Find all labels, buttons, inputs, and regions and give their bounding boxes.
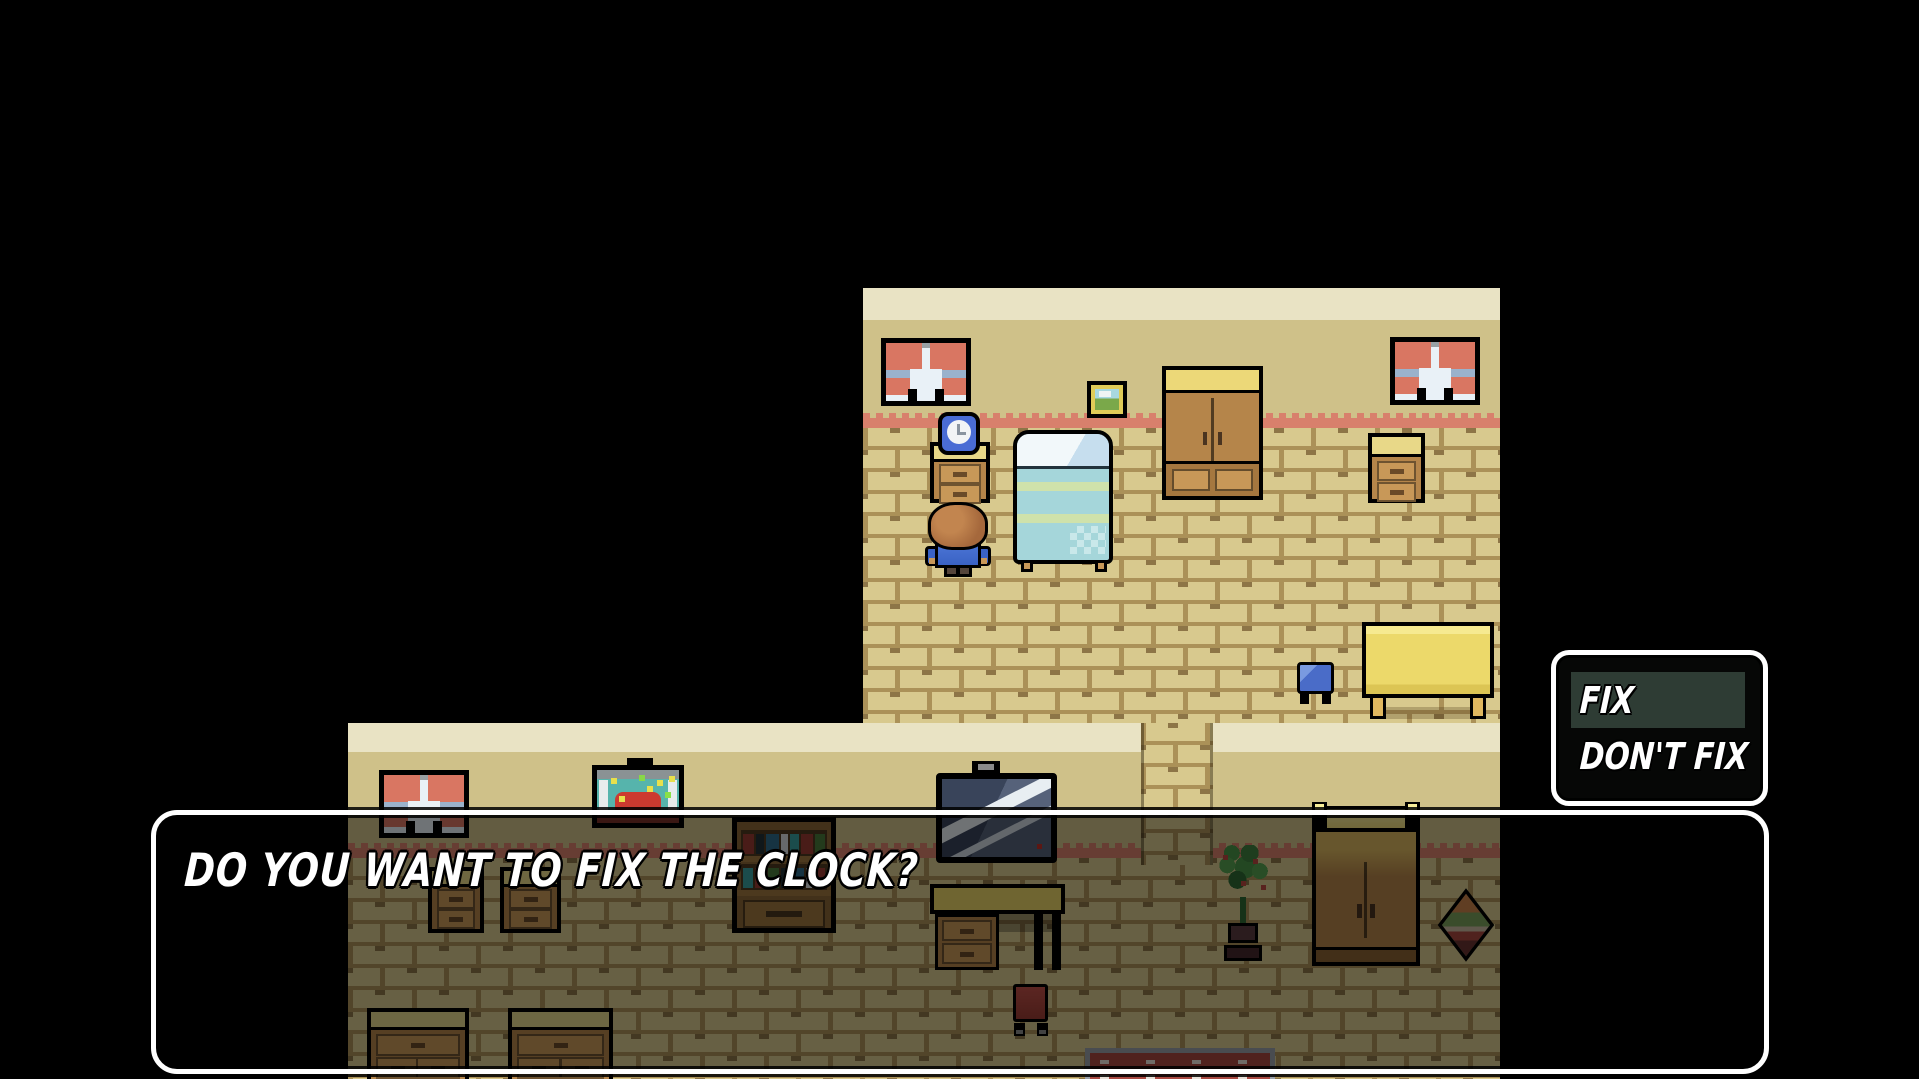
nightstand-drawer	[1377, 482, 1416, 502]
curtain-tie	[942, 370, 966, 378]
picture-frame	[1087, 381, 1127, 418]
blue-stool	[1297, 662, 1334, 704]
painting-hook	[627, 758, 653, 770]
wardrobe-handle	[1203, 432, 1207, 445]
bedroom-wall-trim	[863, 288, 1500, 320]
blanket-stripe	[1017, 482, 1109, 491]
wardrobe-handle	[1218, 432, 1222, 445]
curtain-fold	[930, 343, 942, 369]
side-table	[1362, 622, 1494, 719]
curtain-right	[942, 343, 966, 395]
painting-confetti	[611, 778, 617, 784]
nightstand-drawer	[939, 484, 981, 504]
window	[881, 338, 971, 406]
wardrobe-drawer	[1172, 469, 1210, 491]
curtain-right	[1451, 342, 1475, 394]
curtain-end	[908, 389, 917, 401]
painting-curtain	[668, 780, 677, 812]
tv-mount	[972, 761, 1000, 773]
wardrobe-base	[1166, 461, 1259, 496]
table-shadow	[1376, 707, 1480, 719]
painting-curtain	[599, 780, 608, 812]
wardrobe-door-split	[1211, 398, 1214, 462]
table-top	[1362, 622, 1494, 698]
wardrobe-top	[1166, 370, 1259, 393]
choice-menu: FIX DON'T FIX	[1551, 650, 1768, 806]
dialog-box[interactable]: DO YOU WANT TO FIX THE CLOCK?	[151, 810, 1769, 1074]
bed	[1013, 430, 1113, 564]
curtain-fold	[910, 343, 922, 369]
clock-hand	[957, 432, 966, 435]
stool-seat	[1297, 662, 1334, 694]
curtain-end	[1417, 388, 1426, 400]
choice-option-label: FIX	[1579, 679, 1635, 722]
curtain-fold	[1419, 342, 1431, 368]
nightstand-drawer	[1377, 461, 1416, 481]
blanket-stripe	[1017, 514, 1109, 523]
painting-top-bar	[597, 770, 679, 779]
player-character[interactable]	[925, 502, 991, 580]
bed-foot	[1095, 560, 1107, 572]
picture-cloud	[1099, 391, 1111, 397]
blanket-checker	[1070, 526, 1106, 554]
nightstand-drawer	[939, 464, 981, 484]
bed-pillow	[1017, 434, 1109, 469]
curtain-left	[886, 343, 910, 395]
curtain-left	[1395, 342, 1419, 394]
curtain-tie	[886, 370, 910, 378]
bed-foot	[1021, 560, 1033, 572]
choice-option-label: DON'T FIX	[1579, 735, 1750, 778]
wardrobe-drawer	[1215, 469, 1253, 491]
alarm-clock[interactable]	[938, 412, 980, 455]
nightstand	[1368, 433, 1425, 503]
curtain-tie	[384, 802, 408, 810]
window	[1390, 337, 1480, 405]
curtain-fold	[428, 775, 440, 801]
painting-crab	[615, 792, 661, 812]
curtain-tie	[440, 802, 464, 810]
curtain-end	[935, 389, 944, 401]
living-room-wall-trim	[348, 723, 1500, 752]
character-hair	[928, 502, 988, 550]
curtain-end	[1444, 388, 1453, 400]
curtain-fold	[408, 775, 420, 801]
curtain-tie	[1395, 369, 1419, 377]
curtain-fold	[1439, 342, 1451, 368]
choice-option-dont-fix[interactable]: DON'T FIX	[1571, 728, 1745, 784]
wardrobe	[1162, 366, 1263, 500]
dialog-text: DO YOU WANT TO FIX THE CLOCK?	[183, 843, 920, 897]
nightstand-top	[1372, 437, 1421, 457]
curtain-tie	[1451, 369, 1475, 377]
game-screen: DO YOU WANT TO FIX THE CLOCK? FIX DON'T …	[0, 0, 1919, 1079]
bedroom	[863, 288, 1500, 723]
choice-option-fix[interactable]: FIX	[1571, 672, 1745, 728]
